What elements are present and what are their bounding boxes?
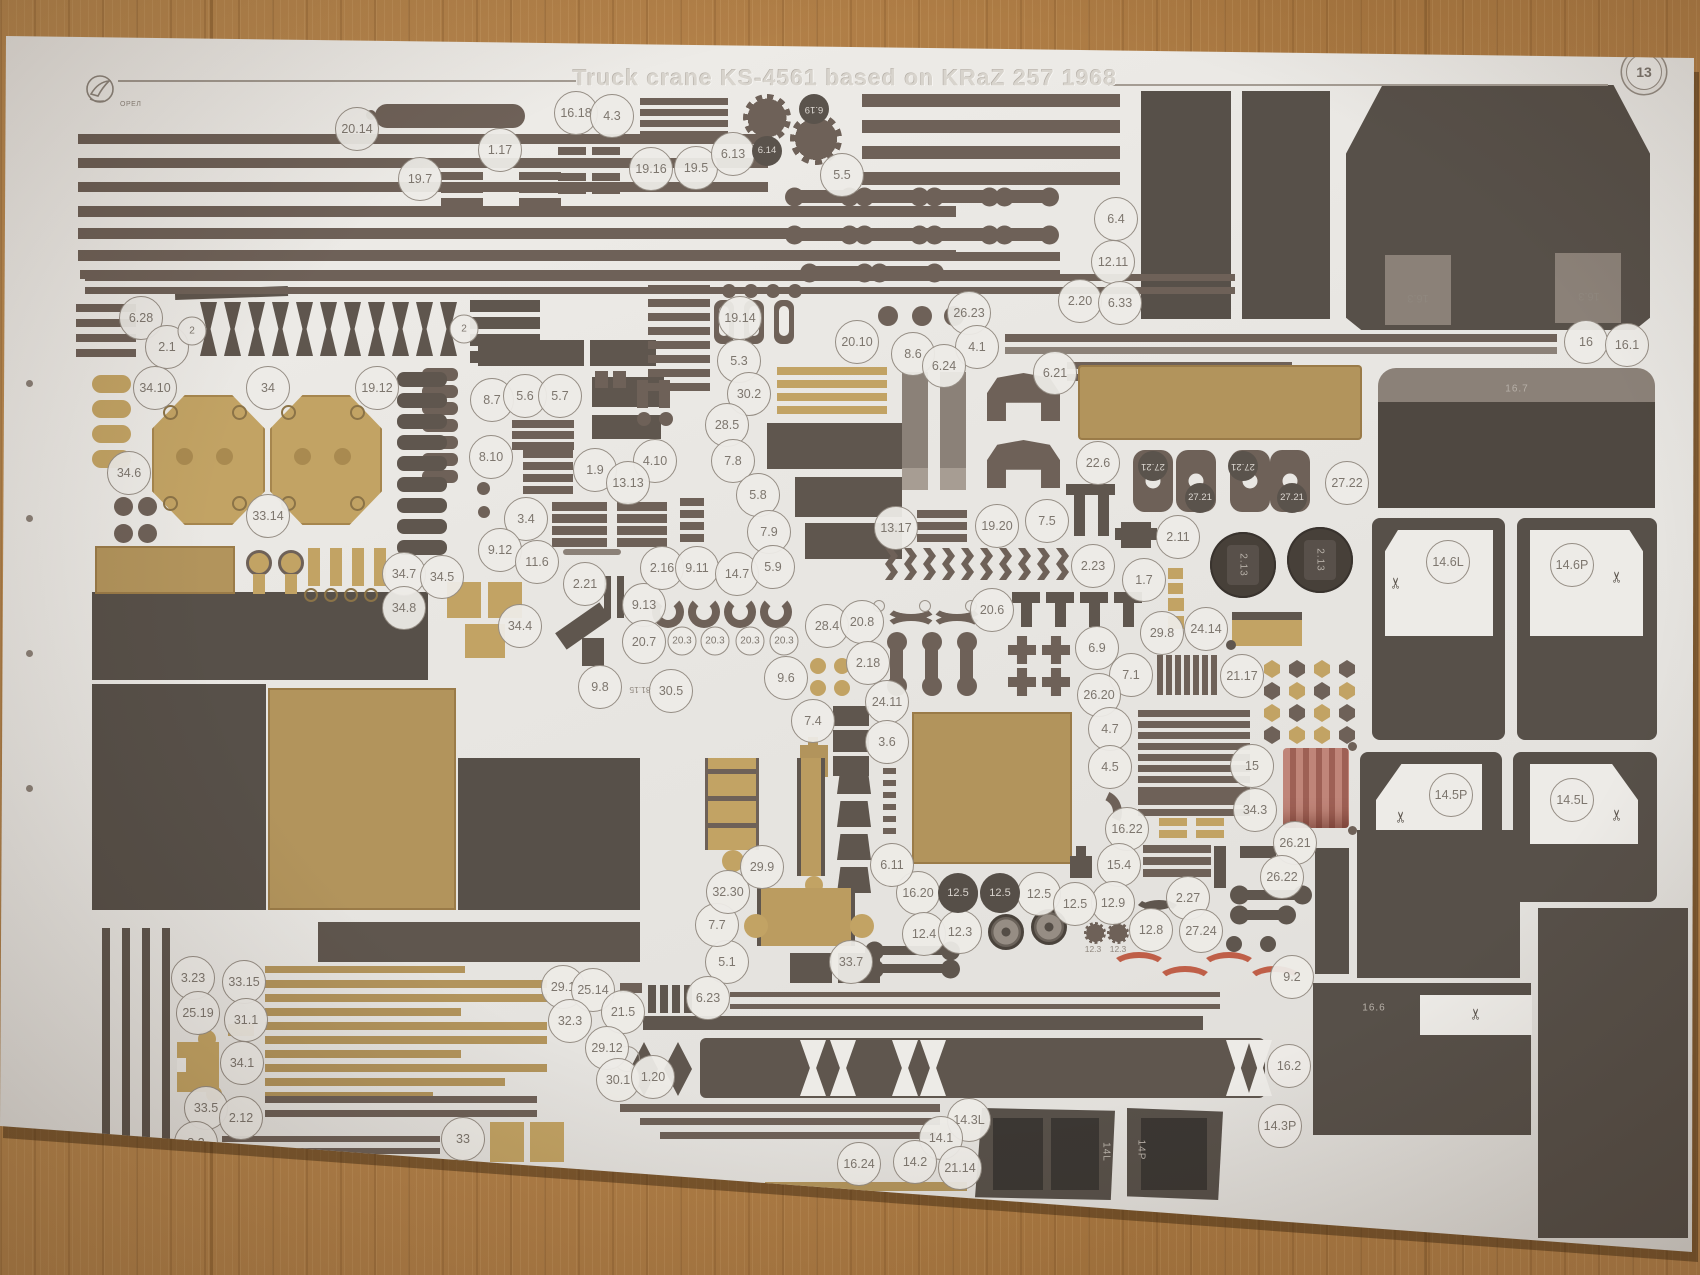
part-label-7.5: 7.5 [1025, 499, 1069, 543]
part-shape [797, 758, 825, 876]
part-label-34.10: 34.10 [133, 366, 177, 410]
part-shape [1378, 402, 1655, 508]
part-shape [1555, 253, 1621, 323]
part-shape [620, 1104, 940, 1112]
part-shape [397, 435, 447, 450]
part-label-15.4: 15.4 [1097, 843, 1141, 887]
part-label-6.19: 6.19 [799, 94, 829, 124]
part-label-29.8: 29.8 [1140, 611, 1184, 655]
part-label-27.24: 27.24 [1179, 909, 1223, 953]
part-shape [222, 1136, 440, 1142]
part-shape [1143, 857, 1211, 865]
part-shape [902, 372, 928, 468]
part-label-21.17: 21.17 [1220, 654, 1264, 698]
part-shape [595, 371, 608, 388]
part-shape [760, 596, 792, 628]
part-shape [265, 1096, 537, 1103]
part-shape [519, 185, 561, 193]
part-shape [1042, 668, 1070, 696]
scissors-icon: ✂ [1467, 1008, 1485, 1021]
part-shape [837, 834, 871, 860]
part-shape [95, 546, 235, 594]
part-shape [265, 1022, 547, 1030]
part-shape [1138, 787, 1250, 794]
part-shape [397, 414, 447, 429]
part-shape [397, 372, 447, 387]
part-label-81.15: 81.15 [629, 685, 650, 695]
part-shape [1138, 710, 1250, 717]
part-shape [883, 768, 896, 774]
part-shape [102, 928, 110, 1140]
part-shape [904, 548, 917, 580]
part-shape [648, 383, 710, 391]
part-shape [705, 758, 759, 850]
part-shape [902, 468, 928, 490]
part-shape [92, 375, 131, 393]
part-label-33.14: 33.14 [246, 494, 290, 538]
part-shape [833, 706, 869, 726]
title-rule-left [118, 80, 576, 82]
part-shape [265, 1050, 461, 1058]
part-shape [1289, 704, 1305, 722]
part-shape [942, 548, 955, 580]
part-shape [640, 98, 728, 105]
part-shape [590, 340, 656, 366]
part-shape [862, 94, 1120, 107]
part-label-19.14: 19.14 [718, 296, 762, 340]
part-shape [1005, 190, 1049, 203]
part-shape [78, 206, 956, 217]
part-label-24.11: 24.11 [865, 680, 909, 724]
part-shape [563, 549, 621, 555]
part-shape [248, 302, 265, 356]
part-shape [470, 317, 540, 329]
part-shape [935, 190, 989, 203]
part-shape [980, 548, 993, 580]
part-shape [1070, 856, 1092, 878]
part-shape [558, 160, 586, 168]
part-shape [1076, 846, 1086, 858]
part-shape [659, 412, 673, 426]
part-shape [1042, 636, 1070, 664]
part-label-20.7: 20.7 [622, 620, 666, 664]
part-shape [777, 380, 887, 388]
part-shape [268, 688, 456, 910]
part-shape [552, 526, 607, 535]
part-shape [999, 548, 1012, 580]
part-label-34: 34 [246, 366, 290, 410]
part-label-29.9: 29.9 [740, 845, 784, 889]
part-shape [344, 588, 358, 602]
part-shape [265, 1008, 461, 1016]
part-label-32.3: 32.3 [548, 999, 592, 1043]
part-shape [1357, 830, 1520, 978]
part-label-16.3: 16.3 [1578, 290, 1599, 302]
part-shape [680, 522, 704, 530]
part-label-6.23: 6.23 [686, 976, 730, 1020]
part-shape [92, 684, 266, 910]
part-shape [862, 146, 1120, 159]
part-shape [643, 1016, 1203, 1030]
part-label-14.5L: 14.5L [1550, 778, 1594, 822]
part-shape [1385, 255, 1451, 325]
part-shape [92, 400, 131, 418]
part-shape [265, 1036, 547, 1044]
part-label-12.8: 12.8 [1129, 908, 1173, 952]
part-shape [582, 638, 604, 666]
part-shape [883, 780, 896, 786]
part-shape [397, 456, 447, 471]
part-shape [512, 431, 574, 439]
part-shape [862, 172, 1120, 185]
part-shape [350, 496, 365, 511]
part-shape [470, 300, 540, 312]
part-shape [490, 1122, 524, 1162]
part-label-2.13: 2.13 [1238, 553, 1249, 576]
part-label-5.5: 5.5 [820, 153, 864, 197]
part-label-27.21: 27.21 [1277, 483, 1307, 513]
part-label-1.20: 1.20 [631, 1055, 675, 1099]
part-shape [320, 302, 337, 356]
scissors-icon: ✂ [1392, 811, 1410, 824]
part-label-14.6L: 14.6L [1426, 540, 1470, 584]
part-label-27.21: 27.21 [1185, 483, 1215, 513]
part-shape [318, 922, 640, 962]
part-shape [1168, 568, 1183, 579]
part-label-12.5: 12.5 [980, 873, 1020, 913]
part-label-2: 2 [450, 315, 479, 344]
part-shape [162, 928, 170, 1140]
part-shape [1078, 365, 1362, 440]
part-shape [640, 120, 728, 127]
part-shape [512, 442, 574, 450]
part-label-14.2: 14.2 [893, 1140, 937, 1184]
part-shape [1315, 848, 1349, 974]
part-shape [923, 548, 936, 580]
part-shape [552, 514, 607, 523]
part-shape [1226, 936, 1242, 952]
part-shape [919, 600, 931, 612]
part-shape [724, 596, 756, 628]
part-shape [640, 1118, 940, 1125]
part-shape [640, 131, 728, 138]
part-label-16.6: 16.6 [1362, 1003, 1385, 1014]
part-shape [330, 548, 342, 586]
part-shape [660, 985, 668, 1013]
part-shape [308, 548, 320, 586]
part-shape [987, 440, 1060, 488]
part-shape [1196, 818, 1224, 826]
part-shape [1115, 528, 1157, 540]
part-label-34.3: 34.3 [1233, 788, 1277, 832]
part-label-20.3: 20.3 [701, 627, 730, 656]
part-shape [637, 380, 648, 408]
part-shape [272, 302, 289, 356]
part-label-20.3: 20.3 [668, 627, 697, 656]
part-shape [142, 928, 150, 1140]
part-shape [1339, 682, 1355, 700]
part-shape [519, 198, 561, 206]
part-shape [1138, 721, 1250, 728]
part-shape [1055, 603, 1066, 627]
part-label-25.19: 25.19 [176, 991, 220, 1035]
part-shape [1226, 640, 1236, 650]
part-shape [917, 534, 967, 542]
part-shape [26, 380, 33, 387]
part-shape [458, 758, 640, 910]
part-shape [730, 992, 1220, 997]
part-shape [350, 405, 365, 420]
part-shape [1193, 655, 1199, 695]
part-shape [637, 412, 651, 426]
part-shape [1264, 704, 1280, 722]
part-shape [912, 306, 932, 326]
part-shape [80, 252, 1060, 261]
part-shape [512, 420, 574, 428]
part-label-16.24: 16.24 [837, 1142, 881, 1186]
part-shape [530, 1122, 564, 1162]
part-label-12.9: 12.9 [1091, 881, 1135, 925]
part-label-2.13: 2.13 [1315, 548, 1326, 571]
part-shape [1184, 655, 1190, 695]
part-label-6.33: 6.33 [1098, 281, 1142, 325]
part-shape [961, 548, 974, 580]
part-shape [777, 367, 887, 375]
part-shape [397, 519, 447, 534]
part-shape [648, 313, 710, 321]
part-shape [777, 406, 887, 414]
part-shape [672, 985, 680, 1013]
part-shape [680, 498, 704, 506]
part-shape [177, 1058, 186, 1072]
part-label-2.18: 2.18 [846, 641, 890, 685]
part-shape [519, 159, 561, 167]
part-shape [470, 351, 540, 363]
part-shape [78, 228, 956, 239]
part-shape [278, 550, 304, 576]
part-shape [688, 596, 720, 628]
part-shape [834, 680, 850, 696]
part-label-7.4: 7.4 [791, 699, 835, 743]
part-shape [114, 524, 133, 543]
part-shape [1008, 668, 1036, 696]
part-shape [1264, 682, 1280, 700]
part-shape [1056, 548, 1069, 580]
publisher-logo-icon [84, 72, 118, 108]
part-shape [368, 302, 385, 356]
part-shape [1089, 603, 1100, 627]
part-shape [1157, 655, 1163, 695]
part-label-11.6: 11.6 [515, 540, 559, 584]
part-shape [1314, 704, 1330, 722]
part-shape [1260, 936, 1276, 952]
part-label-14.5P: 14.5P [1429, 773, 1473, 817]
part-shape [1168, 583, 1183, 594]
part-label-34.6: 34.6 [107, 451, 151, 495]
part-shape [1159, 830, 1187, 838]
part-shape [375, 104, 525, 128]
part-label-9.8: 9.8 [578, 665, 622, 709]
part-label-1.7: 1.7 [1122, 558, 1166, 602]
part-label-6.4: 6.4 [1094, 197, 1138, 241]
part-shape [253, 574, 265, 594]
part-label-19.12: 19.12 [355, 366, 399, 410]
part-shape [883, 792, 896, 798]
part-label-19.7: 19.7 [398, 157, 442, 201]
part-shape [281, 405, 296, 420]
part-label-6.13: 6.13 [711, 132, 755, 176]
part-label-27.21: 27.21 [1228, 451, 1258, 481]
part-shape [757, 888, 855, 946]
part-shape [744, 914, 768, 938]
part-shape [265, 1110, 537, 1117]
part-shape [865, 190, 919, 203]
part-label-3.6: 3.6 [865, 720, 909, 764]
part-label-12.5: 12.5 [938, 873, 978, 913]
part-label-15: 15 [1230, 744, 1274, 788]
part-shape [1008, 636, 1036, 664]
part-shape [862, 120, 1120, 133]
part-shape [1037, 548, 1050, 580]
part-shape [1314, 682, 1330, 700]
part-shape [416, 302, 433, 356]
part-shape [680, 534, 704, 542]
part-shape [26, 650, 33, 657]
part-shape [1123, 603, 1134, 627]
part-shape [648, 285, 710, 293]
part-shape [26, 785, 33, 792]
part-label-34.4: 34.4 [498, 604, 542, 648]
part-shape [1043, 1118, 1051, 1190]
part-label-2.11: 2.11 [1156, 515, 1200, 559]
part-shape [114, 497, 133, 516]
part-shape [523, 462, 573, 470]
part-shape [1240, 846, 1276, 858]
part-label-26.22: 26.22 [1260, 855, 1304, 899]
part-shape [940, 468, 966, 490]
part-shape [767, 423, 902, 469]
part-shape [523, 474, 573, 482]
part-shape [592, 186, 620, 194]
part-label-2: 2 [178, 317, 207, 346]
part-shape [1141, 1118, 1207, 1190]
part-shape [680, 510, 704, 518]
part-label-2.12: 2.12 [219, 1096, 263, 1140]
part-label-24.14: 24.14 [1184, 607, 1228, 651]
part-shape [1214, 846, 1226, 888]
part-label-12.5: 12.5 [1053, 882, 1097, 926]
part-label-22.6: 22.6 [1076, 441, 1120, 485]
part-label-21.14: 21.14 [938, 1146, 982, 1190]
part-shape [660, 1132, 936, 1139]
part-shape [1289, 660, 1305, 678]
part-label-14.3P: 14.3P [1258, 1104, 1302, 1148]
part-shape [1159, 818, 1187, 826]
part-label-8.10: 8.10 [469, 435, 513, 479]
part-shape [1066, 484, 1093, 495]
part-label-9.11: 9.11 [675, 546, 719, 590]
part-shape [224, 302, 241, 356]
part-shape [1289, 726, 1305, 744]
part-shape [397, 498, 447, 513]
part-shape [592, 147, 620, 155]
part-shape [883, 816, 896, 822]
title-rule-right [1108, 84, 1608, 86]
part-label-33.7: 33.7 [829, 940, 873, 984]
part-shape [648, 985, 656, 1013]
part-shape [558, 173, 586, 181]
part-shape [1005, 334, 1557, 342]
part-shape [294, 448, 311, 465]
part-label-31.1: 31.1 [224, 998, 268, 1042]
part-shape [558, 147, 586, 155]
part-shape [1138, 743, 1250, 750]
part-shape [1084, 922, 1106, 944]
part-label-6.11: 6.11 [870, 843, 914, 887]
part-shape [648, 355, 710, 363]
part-shape [1005, 228, 1049, 241]
part-shape [1074, 490, 1085, 536]
part-shape [1018, 548, 1031, 580]
part-shape [850, 914, 874, 938]
part-label-14L: 14L [1101, 1142, 1112, 1162]
part-label-1.17: 1.17 [478, 128, 522, 172]
part-shape [324, 588, 338, 602]
part-shape [265, 1064, 547, 1072]
part-label-16.2: 16.2 [1267, 1044, 1311, 1088]
part-label-34.5: 34.5 [420, 555, 464, 599]
part-shape [92, 425, 131, 443]
scissors-icon: ✂ [1387, 577, 1405, 590]
part-label-20.10: 20.10 [835, 320, 879, 364]
part-label-12.3: 12.3 [1110, 944, 1127, 954]
part-shape [441, 185, 483, 193]
part-shape [334, 448, 351, 465]
part-shape [1314, 660, 1330, 678]
part-shape [1211, 655, 1217, 695]
part-shape [138, 497, 157, 516]
part-shape [779, 306, 789, 336]
part-shape [1005, 347, 1557, 354]
part-shape [1012, 592, 1040, 603]
part-shape [344, 302, 361, 356]
part-shape [592, 160, 620, 168]
part-label-27.22: 27.22 [1325, 461, 1369, 505]
part-shape [478, 506, 490, 518]
part-shape [837, 801, 871, 827]
part-shape [1107, 922, 1129, 944]
part-shape [1538, 908, 1688, 1238]
part-shape [988, 914, 1024, 950]
part-shape [617, 514, 667, 523]
part-label-2.23: 2.23 [1071, 544, 1115, 588]
part-shape [1166, 655, 1172, 695]
part-shape [265, 966, 465, 973]
part-shape [397, 393, 447, 408]
part-label-6.21: 6.21 [1033, 351, 1077, 395]
part-shape [441, 198, 483, 206]
part-shape [397, 477, 447, 492]
sheet-number-badge: 13 [1626, 54, 1662, 90]
part-label-5.9: 5.9 [751, 545, 795, 589]
part-shape [285, 574, 297, 594]
part-label-20.3: 20.3 [736, 627, 765, 656]
part-shape [76, 349, 136, 357]
sheet-title: Truck crane KS-4561 based on KRaZ 257 19… [573, 65, 1117, 92]
part-label-12.3: 12.3 [938, 910, 982, 954]
part-shape [85, 274, 1235, 281]
part-shape [700, 1038, 1265, 1098]
